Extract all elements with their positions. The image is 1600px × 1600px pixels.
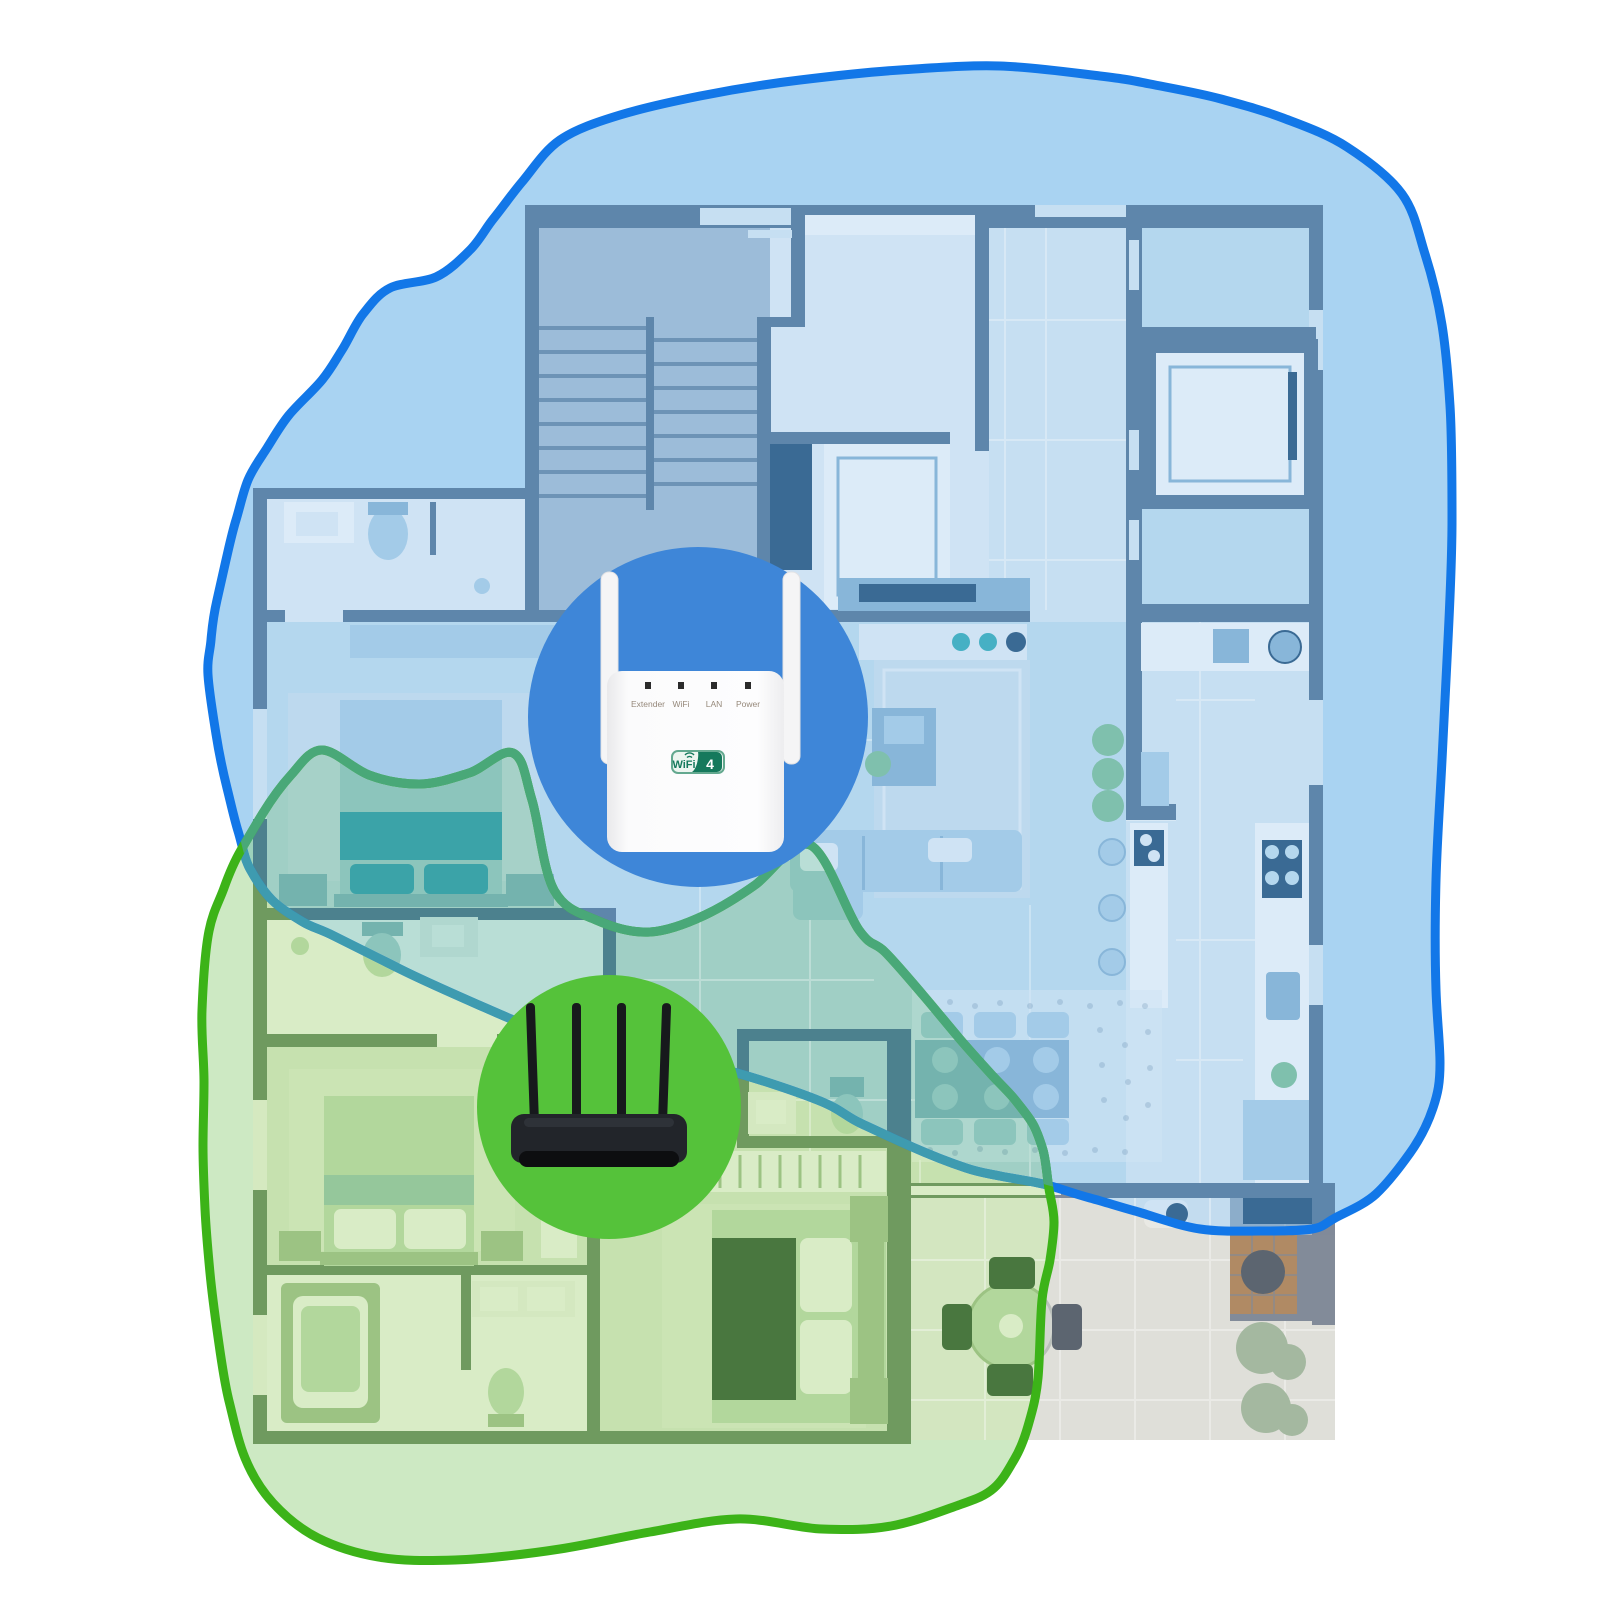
svg-text:4: 4 (706, 756, 714, 772)
svg-text:WiFi: WiFi (672, 759, 695, 771)
svg-text:Power: Power (736, 699, 760, 709)
svg-text:LAN: LAN (706, 699, 723, 709)
svg-text:WiFi: WiFi (673, 699, 690, 709)
svg-text:Extender: Extender (631, 699, 665, 709)
